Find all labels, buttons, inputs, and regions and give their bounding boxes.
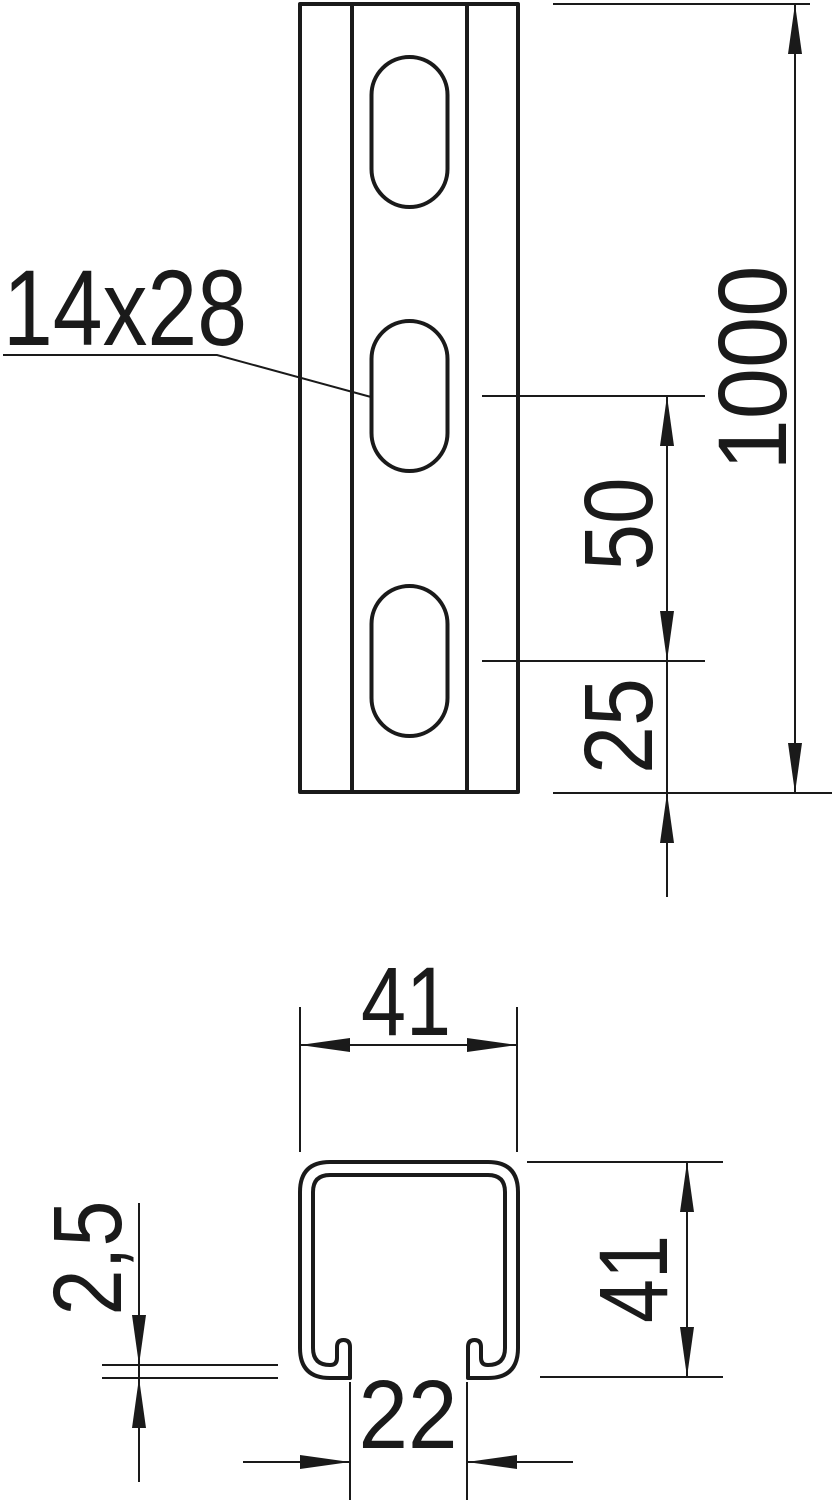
profile-outline <box>300 1162 518 1378</box>
rail-outline <box>300 4 518 792</box>
arrowhead-left <box>467 1455 517 1469</box>
slot-opening-dimension: 22 <box>243 1360 573 1500</box>
arrowhead-up <box>660 396 674 446</box>
arrowhead-down <box>660 611 674 661</box>
slot-pitch-dimension: 50 <box>482 396 705 661</box>
outer-width-label: 41 <box>361 947 451 1056</box>
overall-length-dimension: 1000 <box>553 4 832 793</box>
slot-hole-middle <box>372 321 448 471</box>
slot-hole-top <box>372 57 448 207</box>
strut-profile-drawing: 14x28 1000 50 <box>0 0 832 1500</box>
arrowhead-right <box>467 1038 517 1052</box>
arrowhead-left <box>300 1038 350 1052</box>
rail-slots <box>372 57 448 736</box>
slot-opening-label: 22 <box>359 1360 458 1469</box>
arrowhead-up <box>132 1378 146 1428</box>
cross-section-view: 41 41 2,5 <box>33 947 723 1500</box>
outer-height-label: 41 <box>579 1235 688 1323</box>
arrowhead-up <box>680 1162 694 1212</box>
outer-width-dimension: 41 <box>300 947 517 1152</box>
slot-pitch-label: 50 <box>564 478 673 571</box>
rail-outer-edge <box>300 4 518 792</box>
material-thickness-label: 2,5 <box>33 1201 142 1316</box>
slot-hole-bottom <box>372 586 448 736</box>
front-view: 14x28 1000 50 <box>3 4 832 897</box>
overall-length-label: 1000 <box>698 266 807 471</box>
end-distance-label: 25 <box>564 678 673 774</box>
arrowhead-down <box>788 743 802 793</box>
arrowhead-down <box>680 1327 694 1377</box>
end-distance-dimension: 25 <box>564 661 674 897</box>
material-thickness-dimension: 2,5 <box>33 1201 278 1483</box>
arrowhead-up <box>660 793 674 843</box>
slot-size-callout: 14x28 <box>3 247 371 397</box>
outer-height-dimension: 41 <box>527 1162 723 1377</box>
technical-drawing-page: 14x28 1000 50 <box>0 0 832 1500</box>
slot-size-label: 14x28 <box>3 247 247 368</box>
arrowhead-right <box>300 1455 350 1469</box>
arrowhead-up <box>788 4 802 54</box>
arrowhead-down <box>132 1315 146 1365</box>
